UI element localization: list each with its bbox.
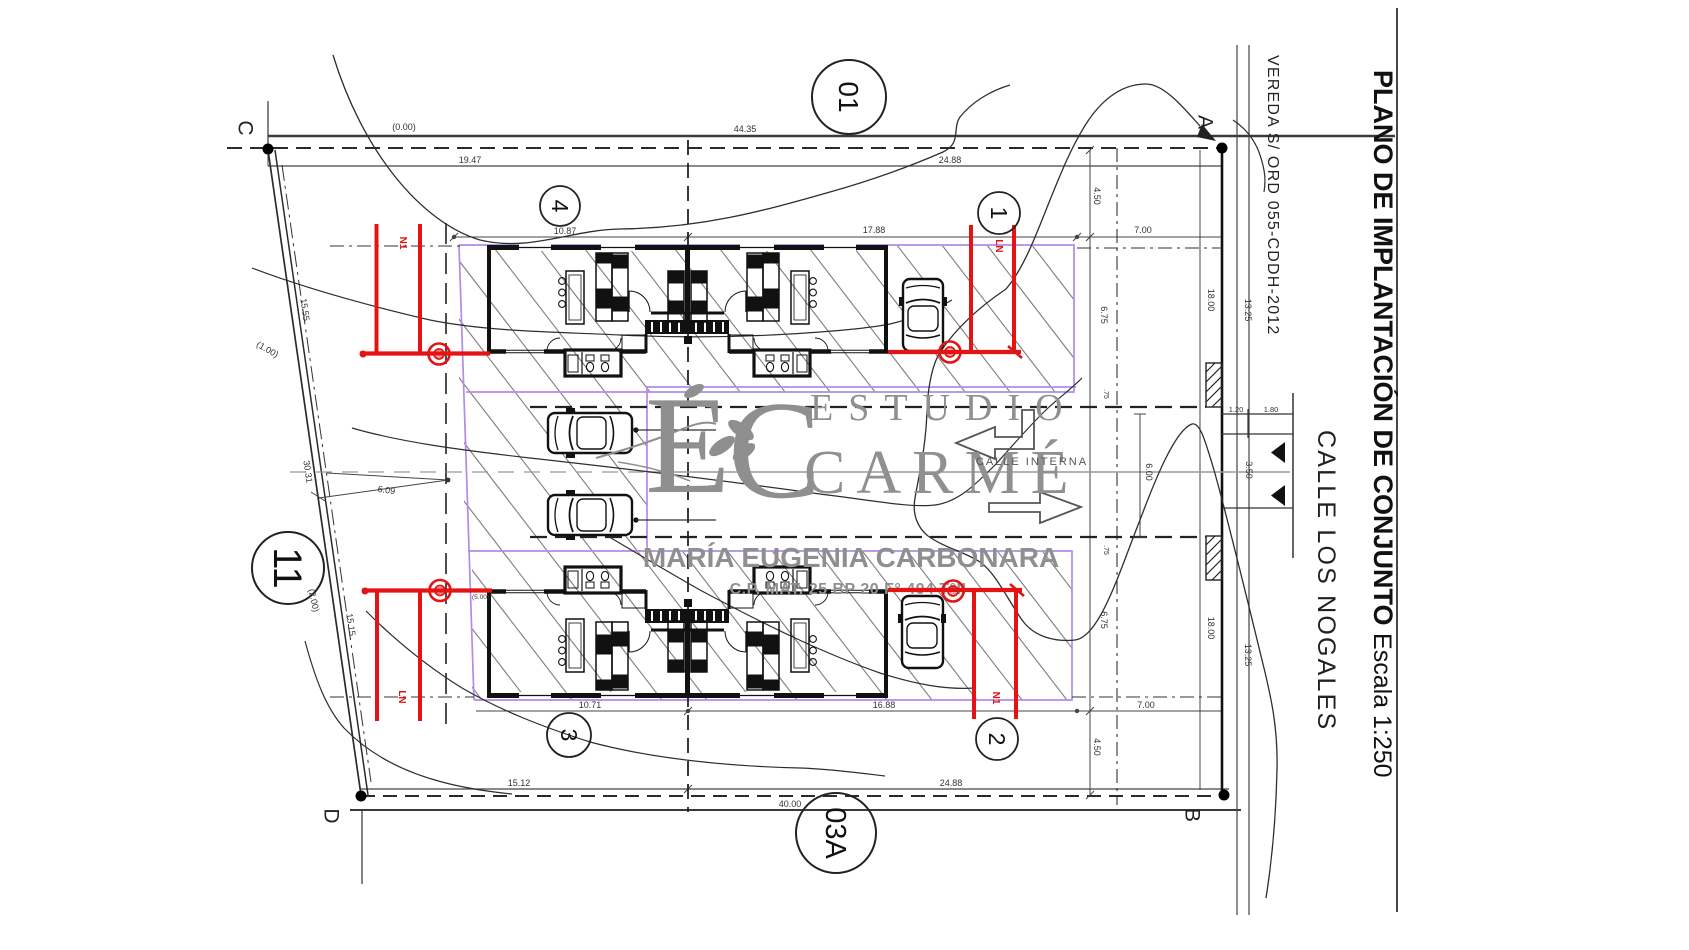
svg-text:03: 03 [949,587,956,595]
svg-text:CARMÉ: CARMÉ [804,439,1079,507]
svg-text:13.25: 13.25 [1243,644,1253,667]
svg-text:MARÍA EUGENIA CARBONARA: MARÍA EUGENIA CARBONARA [643,542,1059,573]
svg-text:44.35: 44.35 [734,124,757,134]
svg-text:7.00: 7.00 [1134,225,1152,235]
svg-text:N1: N1 [990,692,1001,705]
svg-text:3: 3 [556,729,582,742]
svg-text:11: 11 [265,547,309,589]
svg-text:15.12: 15.12 [508,778,531,788]
svg-text:18.00: 18.00 [1206,289,1216,312]
svg-text:19.47: 19.47 [459,155,482,165]
svg-text:(5.00): (5.00) [472,594,489,601]
svg-text:1.20: 1.20 [1229,405,1244,414]
svg-text:4.50: 4.50 [1092,738,1102,756]
svg-text:A: A [1194,115,1217,129]
svg-text:VEREDA S/ ORD 055-CDDH-2012: VEREDA S/ ORD 055-CDDH-2012 [1264,55,1281,336]
svg-text:LN: LN [396,690,407,703]
svg-text:6.75: 6.75 [1099,611,1109,629]
svg-text:6.00: 6.00 [1144,463,1154,481]
svg-text:B: B [1181,808,1204,822]
svg-text:03: 03 [436,587,443,595]
svg-text:18.00: 18.00 [1206,617,1216,640]
svg-text:ESTUDIO: ESTUDIO [810,387,1078,429]
svg-text:C: C [234,120,257,135]
svg-text:(0.00): (0.00) [392,122,416,132]
svg-text:16.88: 16.88 [873,700,896,710]
svg-text:40.00: 40.00 [779,799,802,809]
svg-text:N1: N1 [397,237,408,250]
svg-text:03: 03 [946,348,953,356]
svg-text:03A: 03A [819,807,851,859]
svg-text:24.88: 24.88 [940,778,963,788]
svg-text:.75: .75 [1102,389,1109,399]
svg-text:CALLE LOS NOGALES: CALLE LOS NOGALES [1312,430,1340,731]
svg-text:24.88: 24.88 [939,155,962,165]
svg-text:1: 1 [986,207,1012,220]
svg-text:7.00: 7.00 [1137,700,1155,710]
svg-text:LN: LN [993,239,1004,252]
svg-text:3.50: 3.50 [1244,461,1254,479]
svg-text:D: D [320,808,343,823]
svg-text:17.88: 17.88 [863,225,886,235]
svg-text:10.71: 10.71 [579,700,602,710]
svg-text:4: 4 [547,200,573,213]
svg-text:2: 2 [984,733,1010,746]
svg-text:CALLE INTERNA: CALLE INTERNA [976,456,1088,468]
svg-text:4.50: 4.50 [1092,187,1102,205]
svg-text:1.80: 1.80 [1264,405,1279,414]
svg-text:01: 01 [833,81,864,112]
svg-text:6.75: 6.75 [1099,306,1109,324]
svg-text:.75: .75 [1102,545,1109,555]
svg-text:10.87: 10.87 [554,226,577,236]
svg-text:03: 03 [435,350,442,358]
svg-text:13.25: 13.25 [1243,299,1253,322]
svg-text:PLANO DE IMPLANTACIÓN DE CONJU: PLANO DE IMPLANTACIÓN DE CONJUNTO Escala… [1368,70,1399,778]
